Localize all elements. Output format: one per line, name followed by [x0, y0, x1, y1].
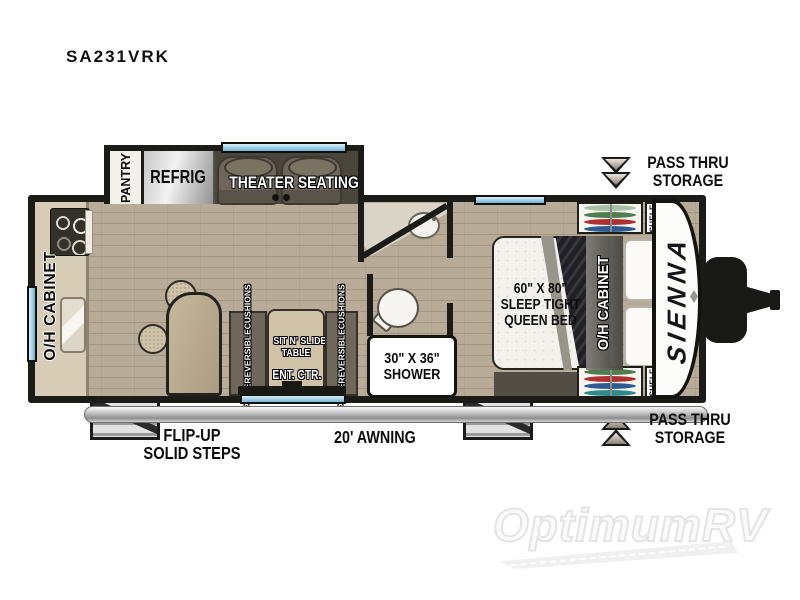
hitch-coupler — [770, 290, 780, 310]
slideout-room: PANTRY REFRIG THEATER SEATING — [104, 145, 364, 204]
theater-seating-label: THEATER SEATING — [229, 173, 359, 193]
shower-label: 30" X 36" SHOWER — [370, 351, 454, 383]
model-title: SA231VRK — [66, 47, 170, 67]
refrigerator: REFRIG — [144, 151, 215, 204]
floorplan-canvas: SA231VRK SIENNA PANTRY REFRIG THEATER SE… — [0, 0, 800, 600]
hanging-clothes-icon — [584, 390, 636, 396]
kitchen-oh-cabinet-label: O/H CABINET — [42, 251, 60, 361]
ent-center-label: ENT. CTR. — [252, 368, 342, 382]
wardrobe-top — [577, 202, 643, 234]
bedroom-oh-cabinet-label: O/H CABINET — [597, 256, 613, 350]
bathroom-wall — [447, 202, 453, 258]
hanging-clothes-icon — [584, 212, 636, 218]
kitchen-oh-cabinet: O/H CABINET — [36, 236, 66, 376]
pass-thru-storage-bottom-label: PASS THRU STORAGE — [629, 411, 751, 448]
window — [27, 286, 37, 362]
wardrobe-bottom — [577, 366, 643, 398]
hanging-clothes-icon — [584, 376, 636, 382]
propane-tank-cover — [703, 257, 747, 343]
pass-thru-storage-top-label: PASS THRU STORAGE — [627, 154, 749, 191]
awning-tube — [84, 406, 708, 423]
dinette-chair — [138, 324, 168, 354]
awning-label: 20' AWNING — [300, 427, 450, 448]
cupholder-icon — [283, 194, 290, 201]
sit-n-slide-table-label: SIT N' SLIDE TABLE — [269, 335, 323, 359]
pantry-label: PANTRY — [119, 153, 133, 203]
brand-logo: SIENNA — [662, 232, 693, 366]
dinette-table — [166, 292, 222, 396]
flip-up-steps-label: FLIP-UP SOLID STEPS — [118, 426, 266, 463]
shower: 30" X 36" SHOWER — [367, 335, 457, 398]
bathroom-wall — [367, 274, 373, 336]
cupholder-icon — [272, 194, 279, 201]
hanging-clothes-icon — [584, 219, 636, 225]
hanging-clothes-icon — [584, 226, 636, 232]
bedroom-oh-cabinet: O/H CABINET — [586, 236, 623, 370]
window — [240, 394, 346, 404]
window — [474, 195, 546, 205]
flipside-cushion-right: FLIPSIDEREVERSIBLECUSHIONS — [325, 311, 358, 396]
toilet — [377, 288, 419, 328]
flipside-cushion-left: FLIPSIDEREVERSIBLECUSHIONS — [229, 311, 267, 396]
window — [221, 142, 347, 153]
hanging-clothes-icon — [584, 383, 636, 389]
counter-edge — [85, 210, 93, 254]
hanging-clothes-icon — [584, 205, 636, 211]
pantry-cabinet: PANTRY — [110, 151, 144, 204]
tv — [238, 386, 346, 395]
theater-seating-area: THEATER SEATING — [215, 151, 358, 204]
queen-bed-label: 60" X 80" SLEEP TIGHT QUEEN BED — [492, 282, 589, 330]
refrigerator-label: REFRIG — [151, 167, 207, 188]
